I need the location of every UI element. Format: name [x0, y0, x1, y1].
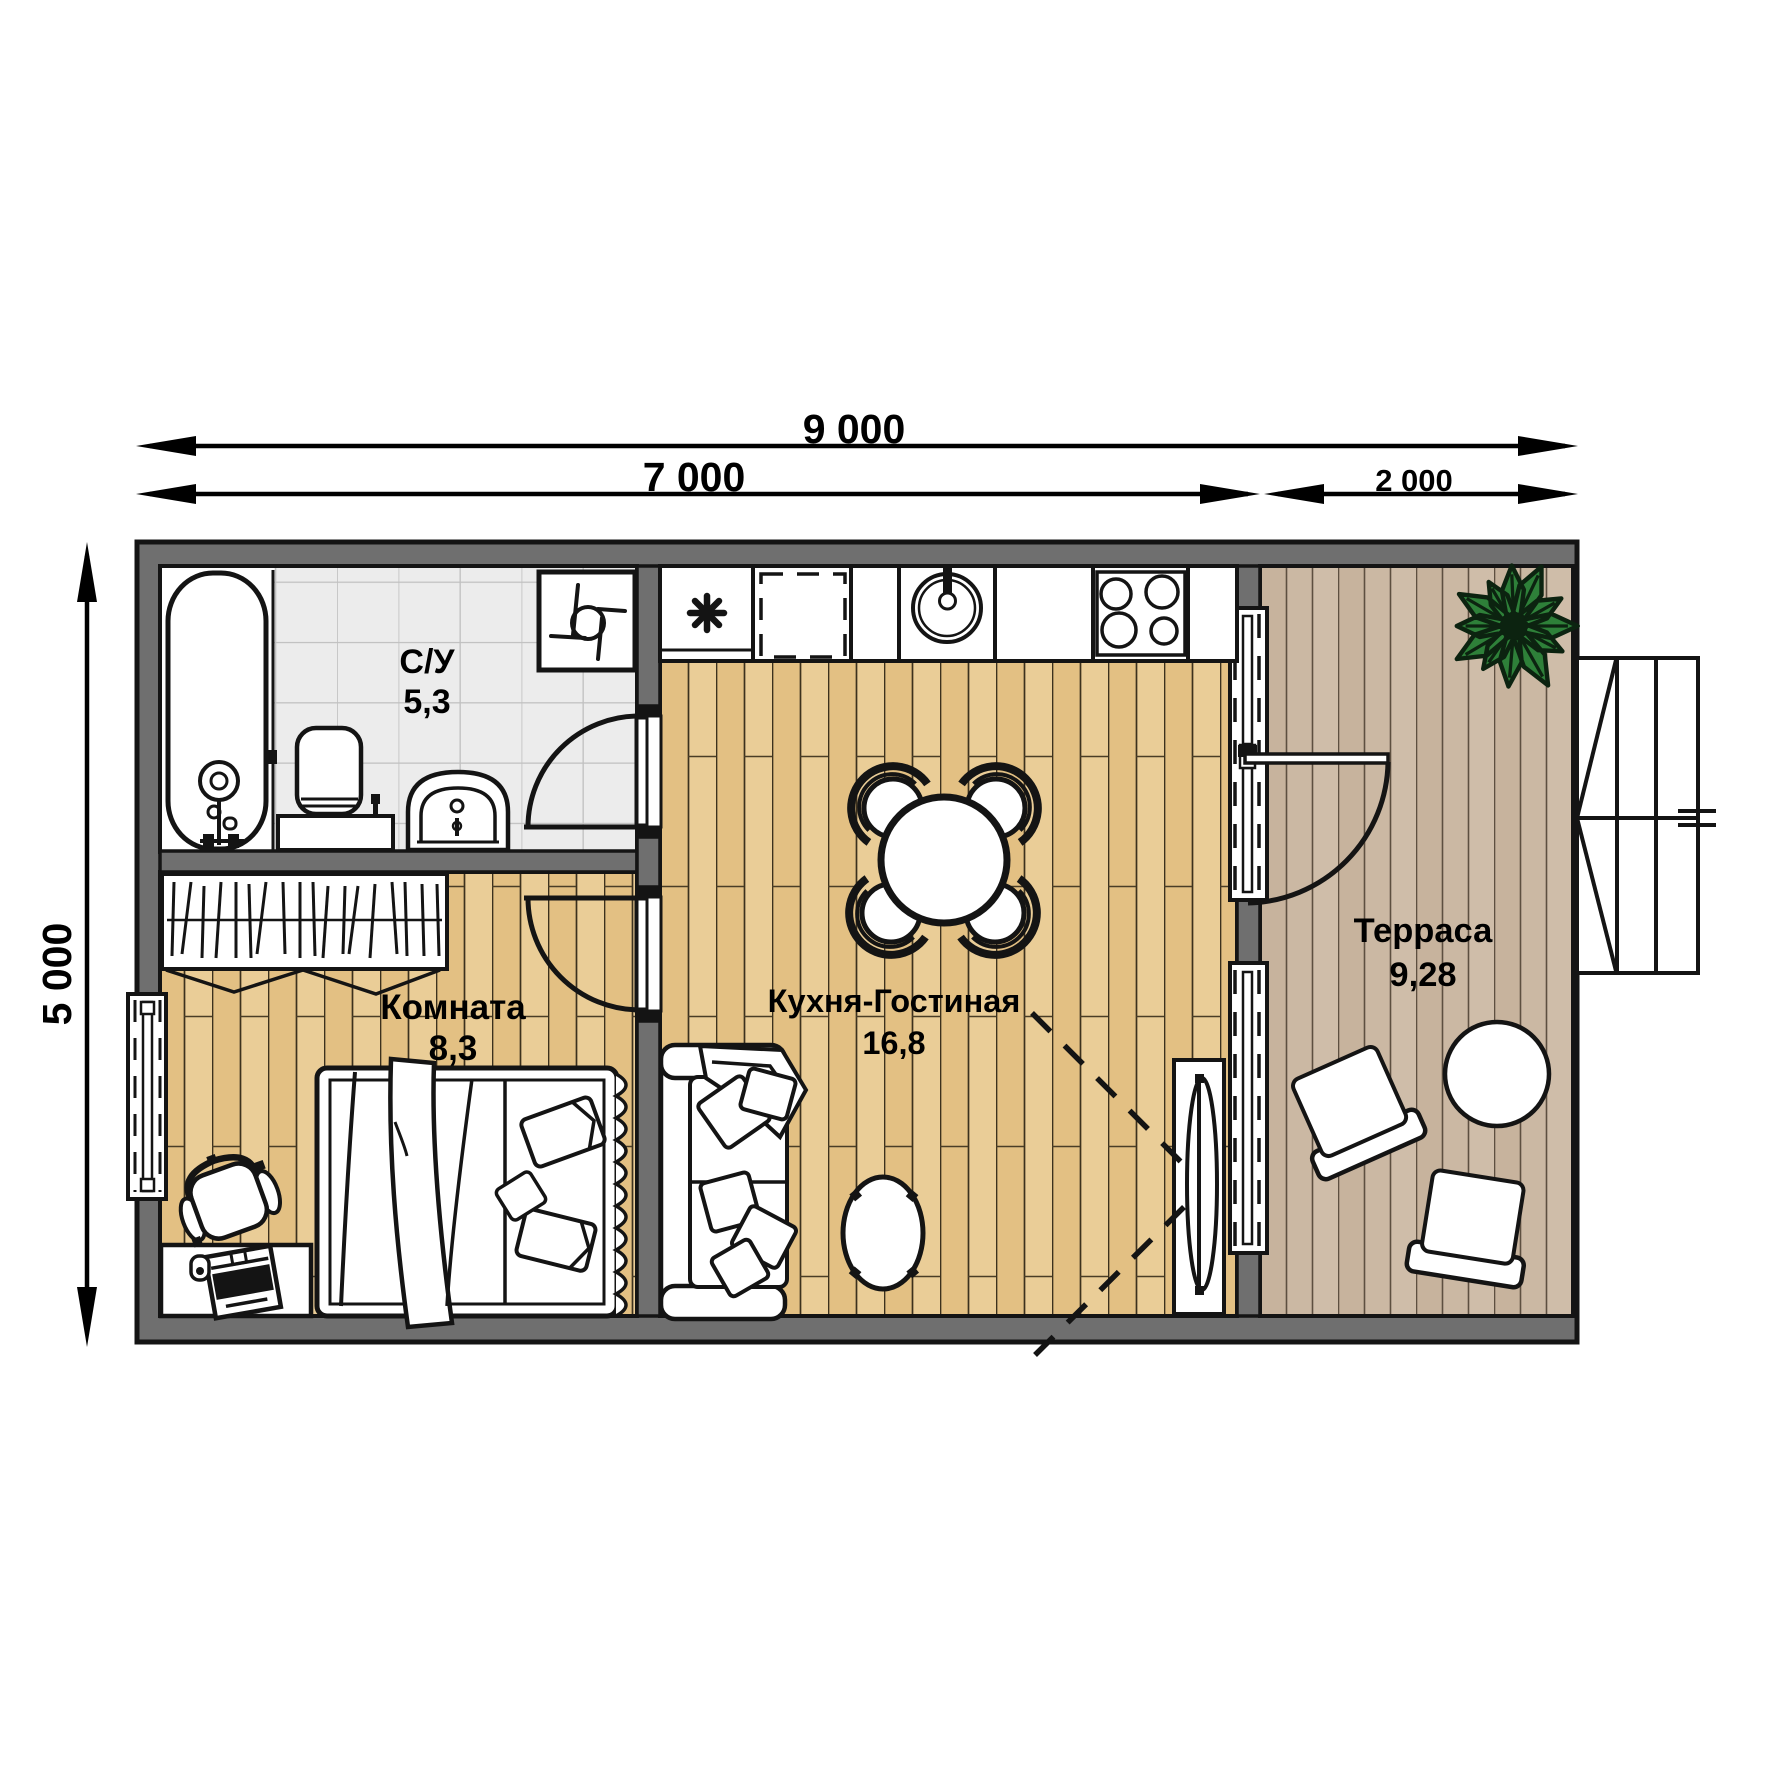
svg-text:9,28: 9,28 [1389, 956, 1456, 994]
svg-text:16,8: 16,8 [862, 1025, 925, 1061]
svg-text:Комната: Комната [380, 988, 526, 1027]
svg-text:5 000: 5 000 [34, 923, 80, 1026]
svg-text:С/У: С/У [399, 643, 455, 681]
svg-text:5,3: 5,3 [403, 683, 450, 721]
svg-text:2 000: 2 000 [1375, 463, 1453, 498]
svg-text:7 000: 7 000 [643, 454, 746, 500]
svg-text:Кухня-Гостиная: Кухня-Гостиная [768, 983, 1021, 1019]
svg-text:Терраса: Терраса [1354, 912, 1493, 950]
svg-text:8,3: 8,3 [429, 1029, 478, 1068]
svg-text:9 000: 9 000 [803, 406, 906, 452]
